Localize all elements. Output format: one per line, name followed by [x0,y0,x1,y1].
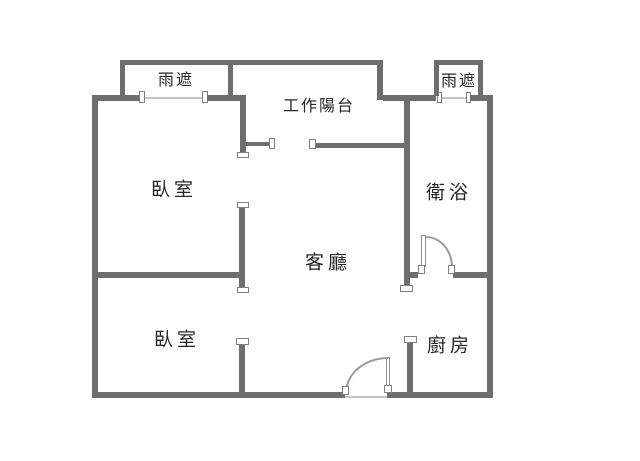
room-label-kitchen: 廚房 [427,331,473,358]
bathroom-door-strike-marker [448,265,455,274]
room-label-bathroom: 衛浴 [426,178,472,205]
entry-threshold-line [345,396,387,398]
entry-door-hinge-marker [384,385,392,393]
room-label-living-room: 客廳 [305,248,351,275]
wall-canopy2-top [434,60,483,65]
wall-canopy-balcony-top [120,60,383,65]
wall-balcony-bottom [316,143,405,148]
entry-door-strike-marker [342,386,349,395]
wall-bathroom-bottom-b [453,272,493,278]
wall-bathroom-bottom-a [404,272,418,278]
room-label-work-balcony: 工作陽台 [283,92,355,116]
window-bathroom-top [441,97,468,99]
bathroom-wall-end-cap [400,285,413,292]
room-label-canopy-left: 雨遮 [158,66,194,90]
wall-exterior-right [487,95,493,398]
wall-balcony-stub-arm [246,142,269,146]
bathroom-door-hinge-marker [418,265,425,274]
wall-exterior-left [92,95,98,398]
entry-door-arc [345,357,388,393]
kitchen-wall-cap [404,336,417,343]
room-label-bedroom-top: 臥室 [151,175,197,202]
wall-bedroom-top-left-segment [92,95,140,101]
wall-bedrooms-divider [92,272,245,278]
wall-exterior-bottom-right [387,392,493,398]
room-label-bedroom-bottom: 臥室 [154,325,200,352]
balcony-stub-marker [269,138,275,149]
window-marker-left [139,91,145,103]
window-bedroom-top [144,97,204,99]
wall-bathroom-left [404,95,410,285]
wall-exterior-bottom-left [92,392,345,398]
balcony-stub-end-cap [237,152,249,158]
bedroom-wall-mid-cap [237,287,249,293]
floor-plan: 雨遮 雨遮 工作陽台 臥室 衛浴 客廳 臥室 廚房 [0,0,640,461]
wall-canopy-right-side [228,60,233,100]
wall-canopy2-left-side [434,60,439,96]
wall-balcony-right-step [377,60,383,100]
wall-kitchen-left [407,343,413,392]
bathroom-door-arc [426,236,453,267]
wall-canopy-left-side [120,60,125,97]
bedroom-wall-low-cap [236,338,249,345]
wall-bedroom-right-lower [239,345,245,392]
wall-bedroom-right-upper [239,208,245,287]
wall-canopy2-right-side [478,60,483,96]
room-label-canopy-right: 雨遮 [441,67,477,91]
balcony-window-marker [309,139,316,149]
